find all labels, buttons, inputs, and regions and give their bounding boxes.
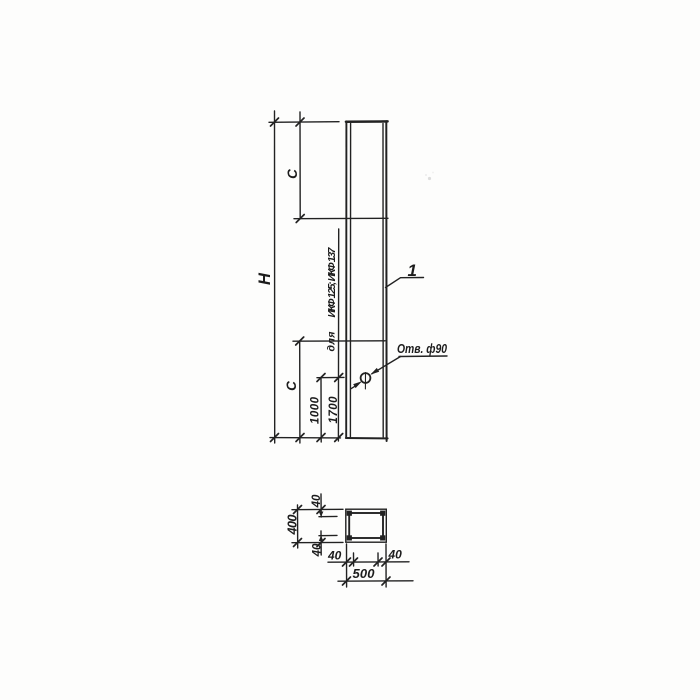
svg-text:H: H: [256, 272, 274, 285]
svg-text:С: С: [284, 381, 299, 391]
svg-text:Отв. ф90: Отв. ф90: [397, 341, 447, 356]
svg-text:1: 1: [408, 261, 417, 280]
svg-text:1700: 1700: [328, 396, 340, 424]
svg-text:400: 400: [286, 514, 300, 535]
svg-text:500: 500: [353, 566, 376, 581]
svg-text:С: С: [285, 169, 300, 179]
svg-text:40: 40: [388, 548, 403, 562]
svg-text:для: для: [326, 332, 338, 352]
svg-text:40: 40: [327, 549, 342, 563]
svg-text:ИКФ 125; ИКФ 137: ИКФ 125; ИКФ 137: [326, 246, 338, 317]
svg-text:40: 40: [311, 494, 323, 508]
svg-text:1000: 1000: [310, 396, 322, 424]
svg-text:40: 40: [312, 543, 324, 557]
